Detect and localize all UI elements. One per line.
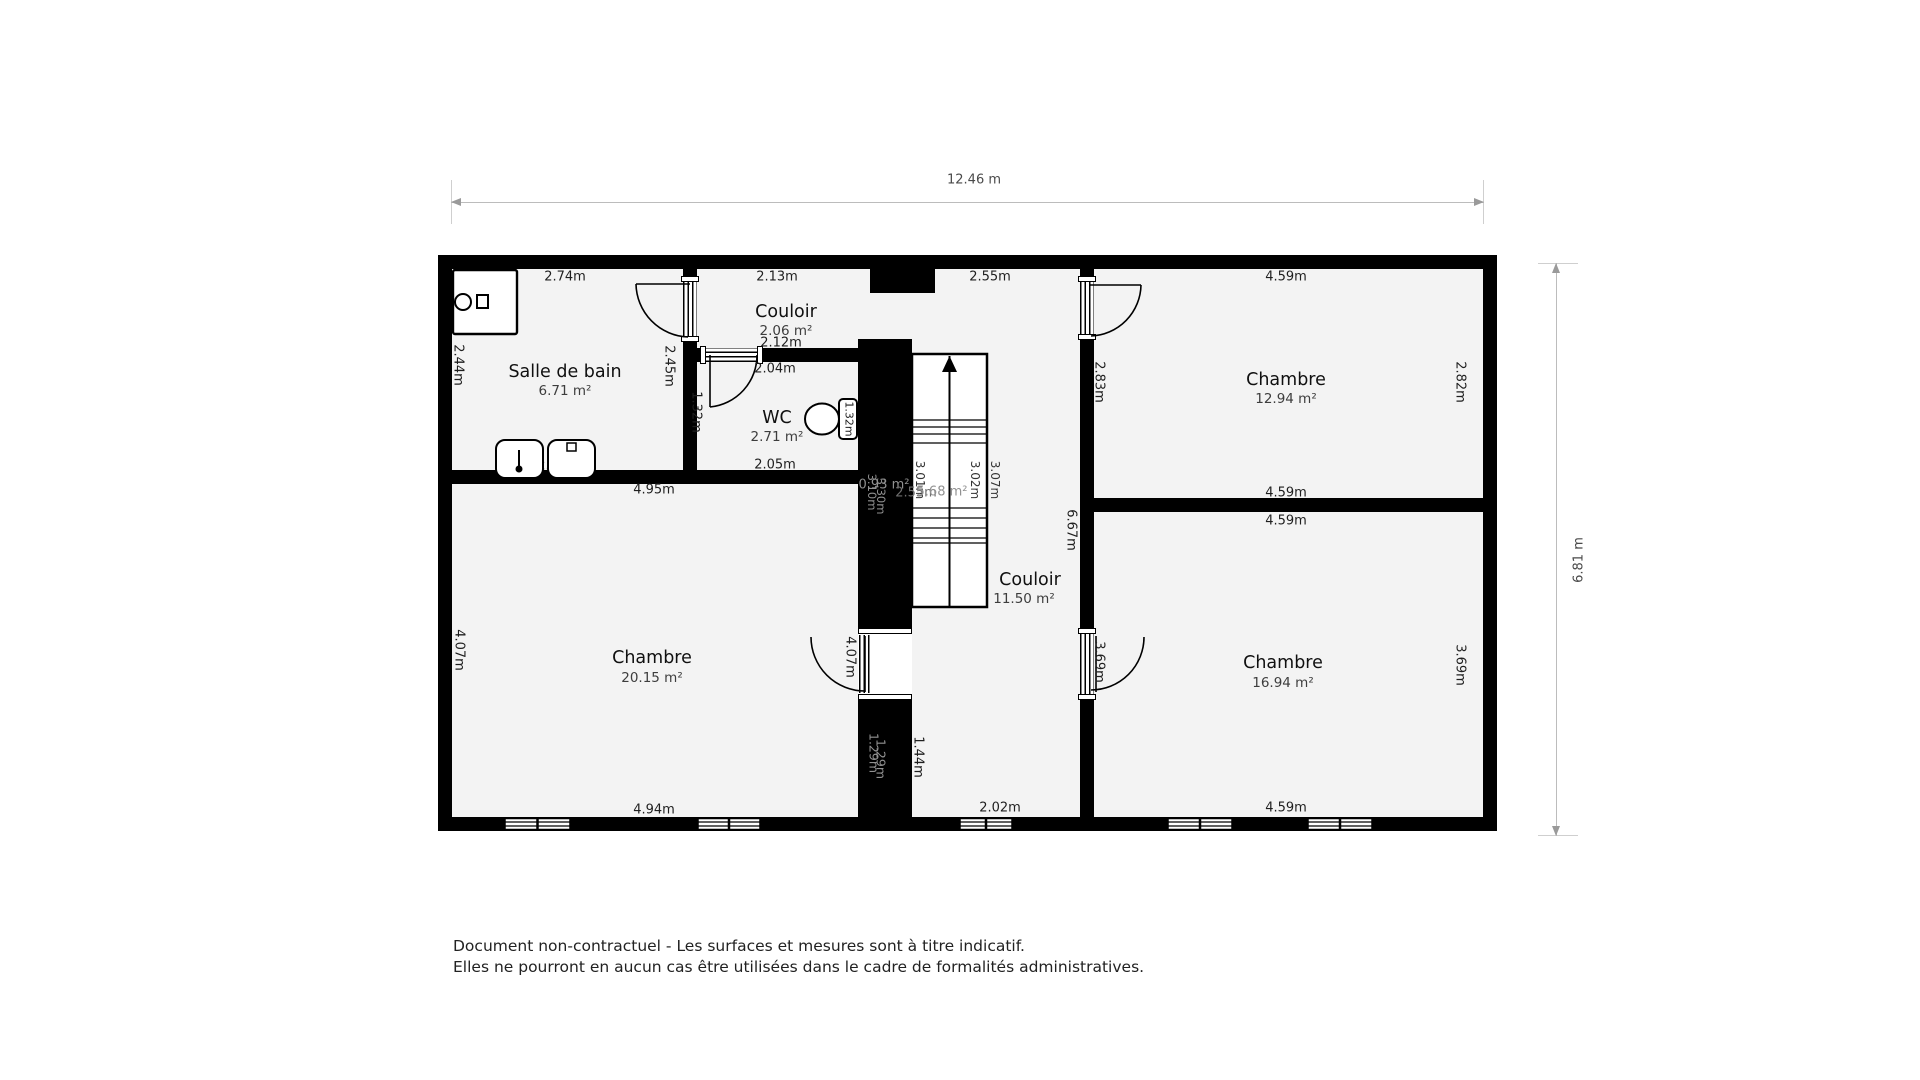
dim-hall2-right: 6.67m (1064, 509, 1079, 551)
washbasin2-icon (548, 440, 595, 478)
dim-bed2-bottom: 4.94m (633, 803, 675, 818)
shower-icon (452, 270, 517, 334)
dim-bed1-top: 4.59m (1265, 270, 1307, 285)
dim-bed2-left: 4.07m (452, 629, 467, 671)
dim-bed3-bottom: 4.59m (1265, 801, 1307, 816)
disclaimer-line2: Elles ne pourront en aucun cas être util… (453, 957, 1144, 978)
door-bed1-swing-icon (1089, 285, 1141, 336)
window-bed2-left-icon (505, 818, 570, 830)
dim-wc-right: 1.32m (843, 401, 856, 436)
dim-hall2-wall: 1.44m (911, 736, 926, 778)
floor-plan-page: { "page": { "bg": "#ffffff", "wall_color… (0, 0, 1920, 1080)
dim-hall1-top: 2.13m (756, 270, 798, 285)
room-area-bed2: 20.15 m² (621, 670, 683, 686)
dim-arrow-right-icon (1474, 198, 1484, 206)
dim-bath-right: 2.45m (662, 345, 677, 387)
room-name-hall2: Couloir (999, 570, 1061, 590)
dim-bath-left: 2.44m (451, 344, 466, 386)
dim-bed2-top: 4.95m (633, 483, 675, 498)
window-bed2-right-icon (698, 818, 760, 830)
room-area-bed1: 12.94 m² (1255, 391, 1317, 407)
overall-width-label: 12.46 m (947, 173, 1001, 188)
dim-wc-top: 2.04m (754, 362, 796, 377)
room-name-bed3: Chambre (1243, 653, 1323, 673)
dim-stairs-c: 3.30m (874, 478, 888, 515)
window-icons (505, 818, 1372, 830)
washbasin-icon (496, 440, 543, 478)
dim-bed3-door: 3.69m (1092, 641, 1107, 683)
window-bed3-right-icon (1308, 818, 1372, 830)
floor-plan: 12.46 m 6.81 m 2.74m 2.44m 2.45m Salle d… (438, 255, 1497, 831)
dim-bed1-bottom: 4.59m (1265, 486, 1307, 501)
room-name-bed1: Chambre (1246, 370, 1326, 390)
dim-arrow-down-icon (1552, 826, 1560, 836)
door-wc-swing-icon (710, 355, 757, 407)
window-bed3-left-icon (1168, 818, 1232, 830)
room-name-wc: WC (762, 408, 792, 428)
disclaimer: Document non-contractuel - Les surfaces … (453, 936, 1144, 978)
dim-bed1-left: 2.83m (1092, 361, 1107, 403)
dim-bed2-door: 4.07m (843, 636, 858, 678)
plan-linework (438, 255, 1497, 831)
room-area-bed3: 16.94 m² (1252, 675, 1314, 691)
dim-arrow-left-icon (451, 198, 461, 206)
dim-arrow-up-icon (1552, 263, 1560, 273)
area-stairs: 5.68 m² (917, 485, 968, 500)
dim-bed1-right: 2.82m (1453, 361, 1468, 403)
dim-line-top (451, 202, 1484, 203)
dim-hall1-bottom: 2.12m (760, 336, 802, 351)
room-area-bath: 6.71 m² (539, 383, 592, 399)
room-name-hall1: Couloir (755, 302, 817, 322)
door-bath-swing-icon (636, 284, 690, 337)
disclaimer-line1: Document non-contractuel - Les surfaces … (453, 936, 1144, 957)
dim-stairs-e: 1.29m (874, 739, 889, 779)
room-name-bed2: Chambre (612, 648, 692, 668)
window-hall2-icon (960, 818, 1012, 830)
dim-stairs-right: 3.07m (988, 461, 1002, 499)
dim-wc-bottom: 2.05m (754, 458, 796, 473)
overall-height-label: 6.81 m (1572, 537, 1587, 583)
dim-line-right (1556, 263, 1557, 836)
room-area-hall2: 11.50 m² (993, 591, 1055, 607)
dim-hall2-bottom: 2.02m (979, 801, 1021, 816)
room-name-bath: Salle de bain (508, 362, 621, 382)
dim-wc-left: 1.32m (689, 391, 704, 433)
dim-landing-top: 2.55m (969, 270, 1011, 285)
dim-bath-top: 2.74m (544, 270, 586, 285)
dim-stairs-mid: 3.02m (968, 461, 982, 499)
room-area-wc: 2.71 m² (751, 429, 804, 445)
dim-bed3-right: 3.69m (1453, 644, 1468, 686)
dim-bed3-top: 4.59m (1265, 514, 1307, 529)
